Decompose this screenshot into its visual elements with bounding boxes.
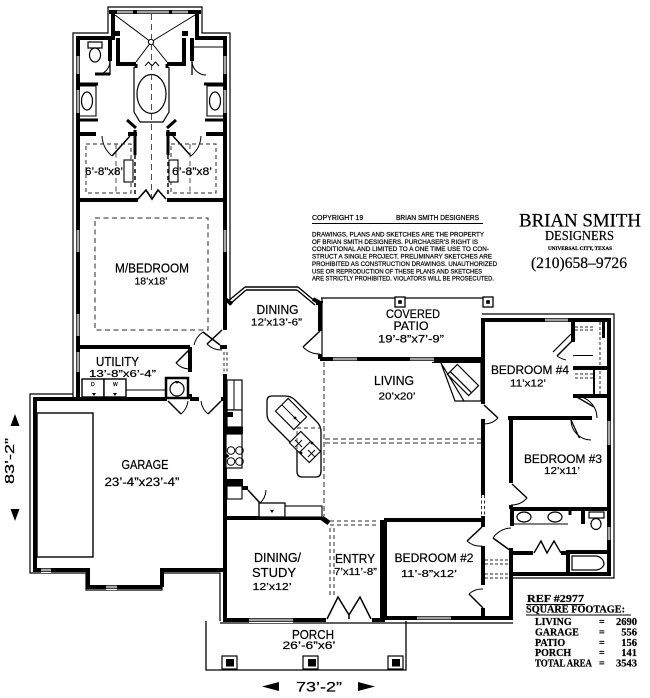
svg-text:USE OR REPRODUCTION OF THESE P: USE OR REPRODUCTION OF THESE PLANS AND S…: [312, 268, 483, 275]
svg-text:CONDITIONAL AND LIMITED TO A O: CONDITIONAL AND LIMITED TO A ONE TIME US…: [312, 246, 489, 253]
svg-text:12’x13’-6”: 12’x13’-6”: [251, 317, 303, 329]
svg-text:ARE STRICTLY PROHIBITED. VIOL: ARE STRICTLY PROHIBITED. VIOLATORS WILL …: [312, 276, 494, 283]
svg-text:(210)658–9726: (210)658–9726: [531, 255, 627, 272]
svg-text:UNIVERSAL CITY, TEXAS: UNIVERSAL CITY, TEXAS: [548, 246, 612, 252]
svg-text:20’x20’: 20’x20’: [379, 391, 416, 403]
svg-text:OF BRIAN SMITH DESIGNERS. PUR: OF BRIAN SMITH DESIGNERS. PURCHASER’S RI…: [312, 239, 479, 246]
svg-text:=: =: [599, 617, 605, 628]
svg-text:2690: 2690: [616, 617, 637, 628]
svg-text:LIVING: LIVING: [374, 373, 414, 388]
svg-text:BEDROOM #2: BEDROOM #2: [395, 551, 474, 565]
svg-text:BEDROOM #3: BEDROOM #3: [524, 452, 602, 466]
svg-text:73’-2”: 73’-2”: [296, 680, 342, 695]
svg-text:GARAGE: GARAGE: [122, 457, 169, 472]
svg-text:PATIO: PATIO: [394, 319, 429, 333]
svg-text:UTILITY: UTILITY: [96, 355, 140, 369]
svg-text:BEDROOM #4: BEDROOM #4: [491, 363, 569, 377]
svg-text:6’-8”x8’: 6’-8”x8’: [172, 166, 212, 178]
svg-text:3543: 3543: [616, 659, 637, 670]
svg-text:ENTRY: ENTRY: [335, 552, 376, 566]
svg-text:SQUARE FOOTAGE:: SQUARE FOOTAGE:: [526, 605, 625, 616]
svg-text:DINING: DINING: [257, 303, 299, 317]
svg-text:141: 141: [621, 648, 637, 659]
svg-text:156: 156: [621, 638, 637, 649]
svg-text:GARAGE: GARAGE: [535, 627, 579, 638]
svg-text:19’-8”x7’-9”: 19’-8”x7’-9”: [378, 334, 444, 346]
svg-text:LIVING: LIVING: [535, 617, 572, 628]
svg-text:STUDY: STUDY: [252, 566, 297, 580]
svg-text:M/BEDROOM: M/BEDROOM: [115, 261, 189, 276]
svg-text:DRAWINGS, PLANS AND SKETCHES A: DRAWINGS, PLANS AND SKETCHES ARE THE PRO…: [312, 232, 485, 239]
svg-text:12’x12’: 12’x12’: [253, 581, 292, 593]
svg-text:11’x12’: 11’x12’: [510, 378, 546, 390]
svg-text:=: =: [599, 648, 605, 659]
svg-text:BRIAN SMITH DESIGNERS: BRIAN SMITH DESIGNERS: [396, 215, 479, 222]
svg-text:26’-6”x6’: 26’-6”x6’: [283, 640, 336, 652]
svg-text:83’-2”: 83’-2”: [2, 438, 17, 484]
svg-text:PATIO: PATIO: [535, 638, 565, 649]
svg-text:6’-8”x8’: 6’-8”x8’: [85, 166, 123, 178]
svg-text:=: =: [599, 659, 605, 670]
svg-text:PORCH: PORCH: [535, 648, 571, 659]
svg-text:=: =: [599, 638, 605, 649]
svg-text:COPYRIGHT 19: COPYRIGHT 19: [312, 215, 363, 222]
svg-text:W: W: [113, 382, 118, 388]
svg-text:PROHIBITED AS CONSTRUCTION DRA: PROHIBITED AS CONSTRUCTION DRAWINGS. UNA…: [312, 261, 497, 268]
svg-text:REF #2977: REF #2977: [527, 594, 584, 605]
svg-text:11’-8”x12’: 11’-8”x12’: [401, 568, 457, 580]
svg-text:556: 556: [621, 627, 637, 638]
svg-text:DESIGNERS: DESIGNERS: [545, 228, 614, 243]
svg-text:=: =: [599, 627, 605, 638]
svg-text:D: D: [91, 382, 95, 388]
svg-text:12’x11’: 12’x11’: [544, 465, 580, 477]
svg-text:DINING/: DINING/: [254, 551, 302, 565]
svg-text:23’-4”x23’-4”: 23’-4”x23’-4”: [105, 477, 180, 489]
svg-text:7’x11’-8”: 7’x11’-8”: [334, 566, 378, 578]
svg-text:TOTAL AREA: TOTAL AREA: [535, 659, 593, 670]
svg-text:18’x18’: 18’x18’: [135, 276, 168, 288]
svg-text:STRUCT A SINGLE PROJECT. PREL: STRUCT A SINGLE PROJECT. PRELIMINARY SKE…: [312, 254, 493, 261]
